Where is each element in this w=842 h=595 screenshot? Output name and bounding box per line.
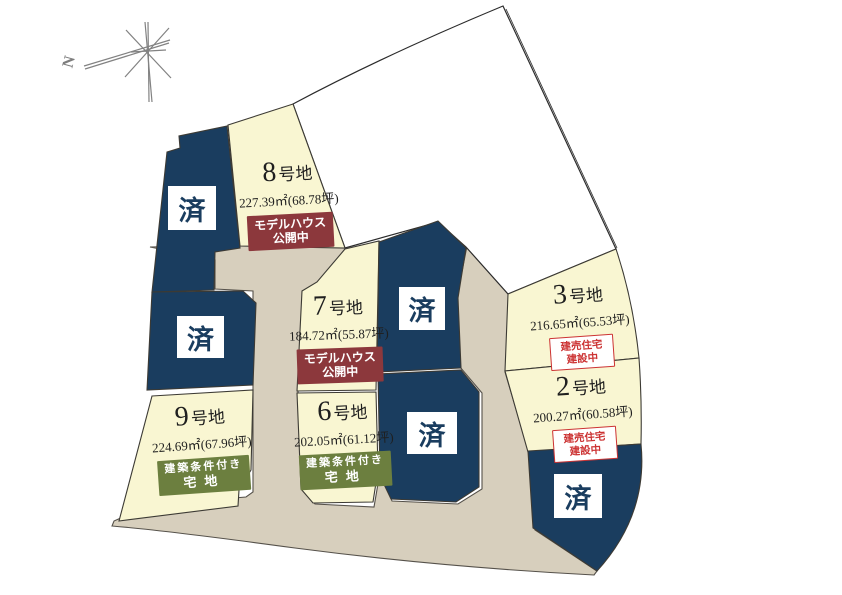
lot-6-label: 6号地 202.05㎡(61.12坪) 建築条件付き 宅地 xyxy=(292,394,396,490)
sold-marker-text: 済 xyxy=(187,318,214,357)
sold-marker-text: 済 xyxy=(409,289,436,328)
sold-marker-lot-a: 済 xyxy=(168,186,216,230)
lot-area: 184.72㎡(55.87坪) xyxy=(289,322,389,344)
sold-marker-lot-e: 済 xyxy=(399,287,445,330)
compass-rose-icon xyxy=(84,22,171,102)
lot-number: 7号地 xyxy=(312,291,363,321)
lot-8-label: 8号地 227.39㎡(68.78坪) モデルハウス 公開中 xyxy=(237,155,341,251)
model-house-badge: モデルハウス 公開中 xyxy=(296,346,383,384)
lot-number: 2号地 xyxy=(555,370,607,401)
lot-area: 216.65㎡(65.53坪) xyxy=(529,309,630,335)
sold-marker-text: 済 xyxy=(419,414,446,453)
lot-area: 202.05㎡(61.12坪) xyxy=(294,426,395,450)
lot-area: 224.69㎡(67.96坪) xyxy=(151,431,252,457)
sold-marker-text: 済 xyxy=(565,477,592,516)
sold-marker-lot-c: 済 xyxy=(554,474,602,518)
under-construction-badge: 建売住宅 建設中 xyxy=(549,334,615,372)
sold-marker-lot-d: 済 xyxy=(407,412,457,454)
lot-9-label: 9号地 224.69㎡(67.96坪) 建築条件付き 宅地 xyxy=(149,399,255,497)
lot-7-label: 7号地 184.72㎡(55.87坪) モデルハウス 公開中 xyxy=(288,290,391,384)
conditional-land-badge: 建築条件付き 宅地 xyxy=(157,455,251,496)
lot-number: 6号地 xyxy=(317,396,368,427)
model-house-badge: モデルハウス 公開中 xyxy=(247,212,335,251)
sold-marker-text: 済 xyxy=(179,189,206,228)
under-construction-badge: 建売住宅 建設中 xyxy=(552,426,618,464)
lot-area: 200.27㎡(60.58坪) xyxy=(532,401,633,427)
sold-marker-lot-b: 済 xyxy=(177,316,224,358)
lot-3-label: 3号地 216.65㎡(65.53坪) 建売住宅 建設中 xyxy=(527,277,633,373)
lot-number: 8号地 xyxy=(262,157,313,188)
lot-number: 3号地 xyxy=(552,278,604,309)
lot-subdivision-map: N 済 済 済 済 済 8号地 227.39㎡(68.78坪) モデルハウス 公… xyxy=(0,0,842,595)
lot-2-label: 2号地 200.27㎡(60.58坪) 建売住宅 建設中 xyxy=(530,369,636,465)
lot-number: 9号地 xyxy=(174,400,226,431)
conditional-land-badge: 建築条件付き 宅地 xyxy=(299,451,393,491)
lot-area: 227.39㎡(68.78坪) xyxy=(239,187,340,211)
